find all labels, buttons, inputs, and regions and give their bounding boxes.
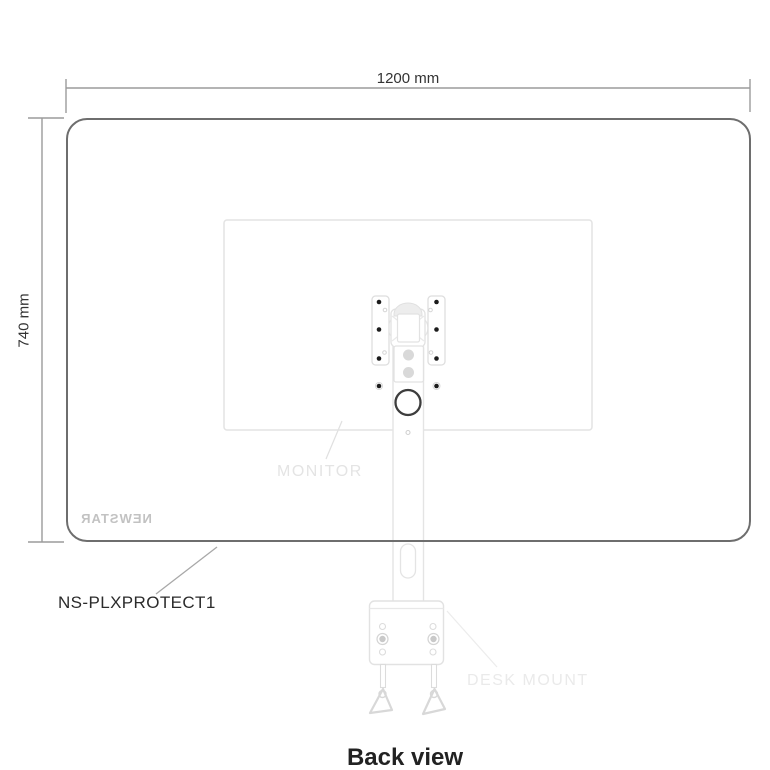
screw-hole bbox=[377, 384, 382, 389]
technical-drawing bbox=[0, 0, 770, 770]
screw-hole bbox=[434, 384, 439, 389]
screw-hole bbox=[377, 300, 382, 305]
toggle-anchor bbox=[423, 689, 445, 714]
height-dimension-line bbox=[28, 118, 64, 542]
diagram-canvas: 1200 mm 740 mm MONITOR DESK MOUNT NEWSTA… bbox=[0, 0, 770, 770]
screw-hole bbox=[434, 300, 439, 305]
brand-logo-mirrored: NEWSTAR bbox=[80, 511, 152, 526]
product-code-label: NS-PLXPROTECT1 bbox=[58, 593, 216, 613]
view-title: Back view bbox=[285, 744, 525, 770]
pole-slot bbox=[401, 544, 416, 578]
clamp-rod bbox=[381, 665, 386, 688]
desk-mount-label: DESK MOUNT bbox=[467, 672, 589, 690]
product-code-leader-line bbox=[156, 547, 217, 594]
monitor-leader-line bbox=[326, 421, 342, 459]
clamp-rod bbox=[432, 665, 437, 688]
tension-knob bbox=[396, 390, 421, 415]
monitor-label: MONITOR bbox=[277, 463, 363, 481]
height-dimension-label: 740 mm bbox=[16, 281, 33, 361]
vesa-swivel-head bbox=[388, 303, 428, 347]
screw-hole bbox=[434, 327, 439, 332]
screw-hole bbox=[377, 327, 382, 332]
pole-bracket bbox=[394, 346, 424, 382]
screw-hole bbox=[434, 356, 439, 361]
width-dimension-label: 1200 mm bbox=[66, 70, 750, 87]
screw-hole bbox=[377, 356, 382, 361]
desk-mount-leader-line bbox=[447, 611, 497, 667]
desk-mount-clamp bbox=[370, 601, 446, 714]
toggle-anchor bbox=[370, 689, 392, 713]
